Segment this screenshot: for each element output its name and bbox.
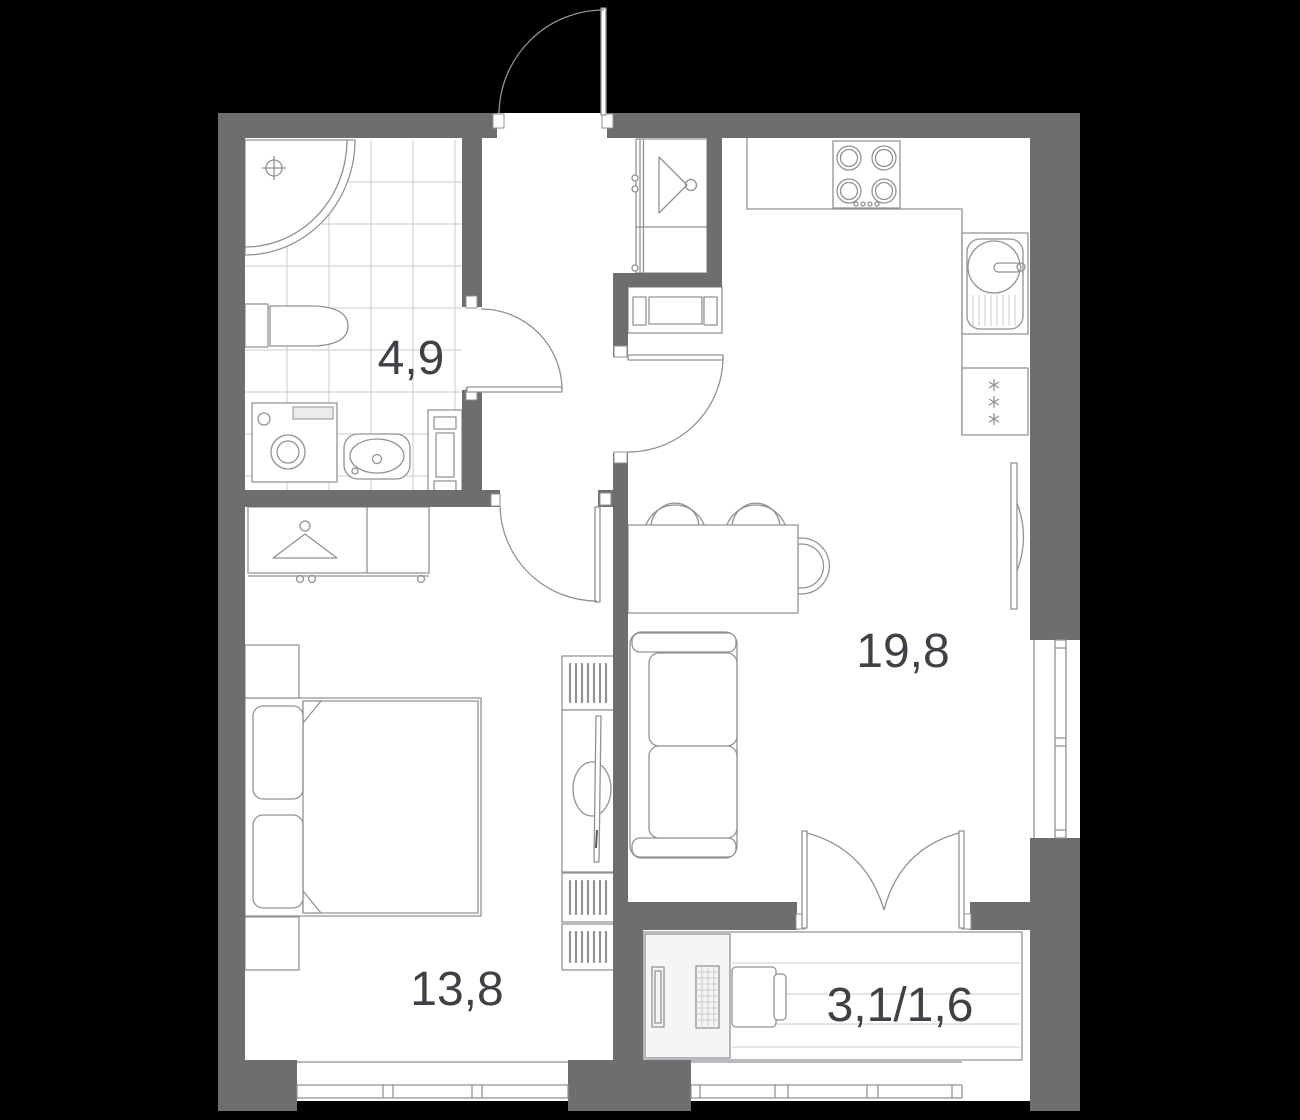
pillow-icon (253, 815, 303, 908)
balcony-chair-icon (732, 967, 786, 1027)
wall (607, 113, 1080, 138)
wall (613, 453, 628, 902)
entrance-door-icon (493, 8, 613, 128)
bedroom-area-label: 13,8 (410, 963, 503, 1016)
tv-stand-icon (562, 710, 615, 872)
bed-icon (245, 698, 481, 916)
radiator-icon (628, 287, 722, 333)
hallway (632, 139, 707, 273)
wall (462, 390, 482, 490)
bookshelf-icon (562, 873, 615, 922)
wall (1030, 838, 1080, 1111)
hall-closet (632, 139, 707, 273)
washing-machine-icon (252, 403, 337, 482)
wardrobe-icon (248, 507, 429, 583)
wall (628, 902, 797, 930)
toilet-icon (245, 304, 348, 347)
wall (218, 113, 497, 138)
kitchen-living-area-label: 19,8 (856, 625, 949, 678)
bookshelf-icon (562, 924, 615, 970)
refrigerator-icon (962, 368, 1028, 435)
bathroom-area-label: 4,9 (378, 332, 445, 385)
floor-plan-drawing: 4,9 19,8 13,8 3,1/1,6 (0, 0, 1300, 1120)
cooktop-icon (833, 141, 900, 208)
towel-radiator-icon (428, 410, 462, 498)
wall (568, 1060, 691, 1111)
kitchen-sink-icon (962, 233, 1028, 334)
wall (245, 490, 500, 507)
balcony-area-label: 3,1/1,6 (827, 979, 974, 1032)
wall (218, 1060, 297, 1111)
nightstand-icon (245, 645, 299, 698)
wall (707, 138, 722, 277)
pillow-icon (253, 706, 303, 799)
wall (1030, 138, 1080, 640)
wall (218, 138, 245, 1060)
wall (970, 902, 1030, 930)
wall (462, 138, 482, 307)
bookshelf-icon (562, 656, 615, 710)
floor-plan-page: 4,9 19,8 13,8 3,1/1,6 (0, 0, 1300, 1120)
wash-basin-icon (344, 434, 410, 479)
nightstand-icon (245, 917, 299, 970)
sofa-icon (630, 632, 737, 858)
wall (613, 273, 722, 287)
dining-table (628, 525, 798, 613)
